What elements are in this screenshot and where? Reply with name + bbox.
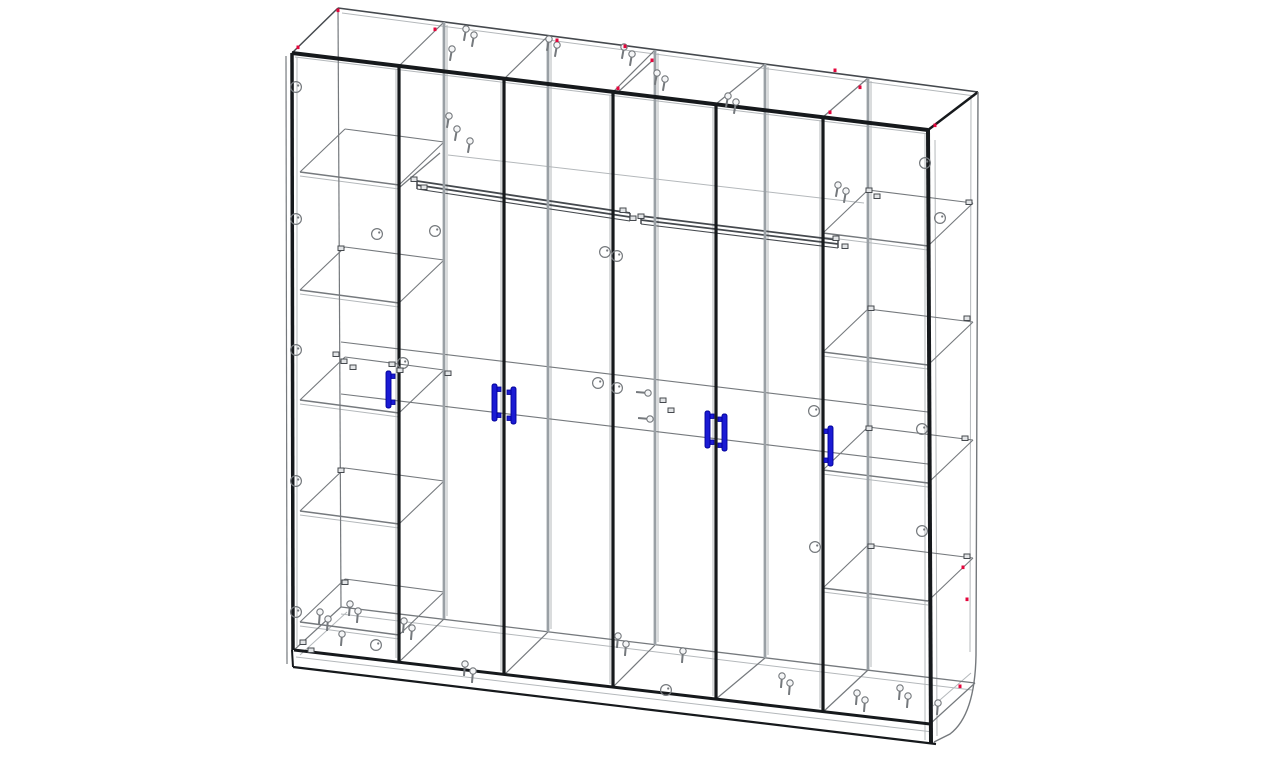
bracket-icon [397, 368, 403, 373]
bracket-icon [338, 468, 344, 473]
door-handle [507, 387, 516, 424]
door-handle [386, 371, 395, 408]
screw-icon [347, 601, 353, 607]
edge-line [399, 370, 444, 413]
screw-icon [935, 700, 941, 706]
edge-line [300, 357, 345, 400]
red-marker [337, 9, 340, 13]
screw-icon [662, 76, 668, 82]
edge-line [935, 140, 937, 736]
edge-line [868, 545, 973, 558]
edge-line [504, 36, 548, 79]
bracket-icon [962, 436, 968, 441]
cam-lock-pin [378, 231, 380, 233]
handle-bar [722, 414, 727, 451]
handle-bar [492, 384, 497, 421]
screw-icons [317, 26, 941, 715]
edge-line [641, 220, 838, 244]
red-marker [617, 87, 620, 91]
edge-line [417, 181, 630, 213]
screw-icon [779, 673, 785, 679]
edge-line [345, 247, 444, 260]
red-marker [859, 86, 862, 90]
edge-line [341, 614, 972, 690]
screw-icon [446, 113, 452, 119]
screw-icon [409, 625, 415, 631]
screw-icon [325, 616, 331, 622]
red-marker [959, 685, 962, 689]
edge-line [399, 22, 444, 66]
bracket-icon [866, 188, 872, 193]
edge-line [868, 190, 973, 203]
bracket-icon [342, 580, 348, 585]
bracket-icon [966, 200, 972, 205]
red-marker [934, 124, 937, 128]
cam-lock-icon [809, 406, 820, 417]
edge-line [292, 53, 293, 650]
edge-line [399, 260, 444, 303]
bracket-icon [411, 177, 417, 182]
screw-icon [645, 390, 651, 396]
screw-icon [623, 641, 629, 647]
cam-lock-pin [816, 544, 818, 546]
edge-line [399, 481, 444, 524]
cam-lock-pin [297, 347, 299, 349]
bracket-icon [445, 371, 451, 376]
red-marker [434, 28, 437, 32]
edge-line [716, 658, 765, 699]
edge-line [300, 247, 345, 290]
cam-lock-icon [917, 424, 928, 435]
red-marker [651, 59, 654, 63]
edge-line [823, 309, 868, 352]
edge-line [417, 185, 630, 217]
bracket-icon [868, 306, 874, 311]
screw-icon [470, 668, 476, 674]
screw-icon [897, 685, 903, 691]
screw-icon [554, 42, 560, 48]
red-marker [829, 111, 832, 115]
screw-icon [862, 697, 868, 703]
screw-icon [854, 690, 860, 696]
bracket-icon [300, 640, 306, 645]
bracket-icon [638, 214, 644, 219]
bracket-icon [874, 194, 880, 199]
handle-bar [828, 426, 833, 466]
red-marker [556, 39, 559, 43]
screw-icon [629, 51, 635, 57]
edge-line [399, 592, 444, 635]
handle-bar [386, 371, 391, 408]
screw-icon [835, 182, 841, 188]
red-marker [834, 69, 837, 73]
cam-lock-pin [618, 385, 620, 387]
edge-line [868, 427, 973, 440]
cam-lock-icon [810, 542, 821, 553]
screw-icon [843, 188, 849, 194]
edge-line [300, 290, 399, 303]
edge-line [928, 558, 973, 601]
cam-lock-icon [593, 378, 604, 389]
bracket-icon [421, 185, 427, 190]
screw-icon [339, 631, 345, 637]
cam-lock-icon [935, 213, 946, 224]
edge-line [341, 342, 928, 412]
drawing-curves [934, 92, 978, 742]
edge-line [823, 588, 928, 601]
screw-icon [725, 93, 731, 99]
bracket-icon [338, 246, 344, 251]
bracket-icon [341, 359, 347, 364]
edge-line [868, 309, 973, 322]
edge-line [617, 60, 653, 93]
screw-icon [654, 70, 660, 76]
cam-lock-pin [436, 228, 438, 230]
edge-line [345, 468, 444, 481]
red-marker [624, 45, 627, 49]
bracket-icon [866, 426, 872, 431]
door-handle [718, 414, 727, 451]
bracket-icon [308, 648, 314, 653]
panel-curve [934, 92, 978, 742]
screw-icon [449, 46, 455, 52]
bracket-icon [668, 408, 674, 413]
edge-line [399, 619, 444, 662]
cam-lock-pin [923, 528, 925, 530]
bracket-icon [842, 244, 848, 249]
edge-line [823, 352, 928, 365]
screw-icon [463, 26, 469, 32]
edge-line [417, 189, 630, 221]
wardrobe-svg [0, 0, 1267, 758]
handle-bar [705, 411, 710, 448]
screw-icon [355, 608, 361, 614]
edge-line [823, 670, 868, 712]
door-handle [824, 426, 833, 466]
edge-line [345, 579, 444, 592]
wardrobe-technical-drawing [0, 0, 1267, 758]
edge-line [300, 622, 399, 635]
edge-line [300, 511, 399, 524]
cam-lock-pin [297, 478, 299, 480]
screw-icon [462, 661, 468, 667]
edge-line [292, 650, 293, 667]
cam-lock-pin [926, 160, 928, 162]
screw-icon [905, 693, 911, 699]
screw-icon [787, 680, 793, 686]
cam-lock-pin [377, 642, 379, 644]
screw-icon [733, 99, 739, 105]
edge-line [928, 130, 931, 743]
cam-lock-icon [917, 526, 928, 537]
screw-icon [317, 609, 323, 615]
bracket-icon [389, 362, 395, 367]
edge-line [338, 8, 341, 607]
edge-line [300, 579, 345, 622]
screw-icon [546, 36, 552, 42]
screw-icon [680, 648, 686, 654]
screw-icon [467, 138, 473, 144]
edge-line [716, 64, 765, 104]
red-marker [962, 566, 965, 570]
edge-line [823, 545, 868, 588]
cam-lock-pin [297, 609, 299, 611]
edge-line [928, 440, 973, 483]
cam-lock-pin [667, 687, 669, 689]
bracket-icon [333, 352, 339, 357]
edge-line [300, 400, 399, 413]
cam-lock-icon [371, 640, 382, 651]
cam-lock-icon [430, 226, 441, 237]
bracket-icon [833, 236, 839, 241]
screw-icon [454, 126, 460, 132]
edge-line [300, 468, 345, 511]
edge-line [345, 129, 444, 142]
handle-bar [511, 387, 516, 424]
bracket-icon [660, 398, 666, 403]
cam-lock-pin [815, 408, 817, 410]
red-marker [966, 598, 969, 602]
screw-icon [471, 32, 477, 38]
edge-line [970, 97, 971, 652]
bracket-icon [964, 554, 970, 559]
cam-lock-pin [923, 426, 925, 428]
cam-lock-icon [372, 229, 383, 240]
screw-icon [615, 633, 621, 639]
red-marker [297, 46, 300, 50]
cam-lock-pin [297, 84, 299, 86]
door-handle [492, 384, 501, 421]
edge-line [823, 470, 928, 483]
cam-lock-pin [404, 360, 406, 362]
edge-line [928, 322, 973, 365]
edge-line [300, 172, 399, 185]
screw-icon [401, 618, 407, 624]
cam-lock-pin [599, 380, 601, 382]
bracket-icon [868, 544, 874, 549]
cam-lock-pin [297, 216, 299, 218]
cam-lock-pin [606, 249, 608, 251]
edge-line [399, 142, 444, 185]
bracket-icon [630, 216, 636, 221]
edge-line [613, 645, 655, 687]
cam-lock-pin [941, 215, 943, 217]
bracket-icon [964, 316, 970, 321]
edge-line [286, 56, 287, 664]
edge-line [504, 632, 548, 675]
bracket-icon [350, 365, 356, 370]
bracket-icon [620, 208, 626, 213]
cam-lock-pin [618, 253, 620, 255]
screw-icon [647, 416, 653, 422]
cam-lock-icon [600, 247, 611, 258]
